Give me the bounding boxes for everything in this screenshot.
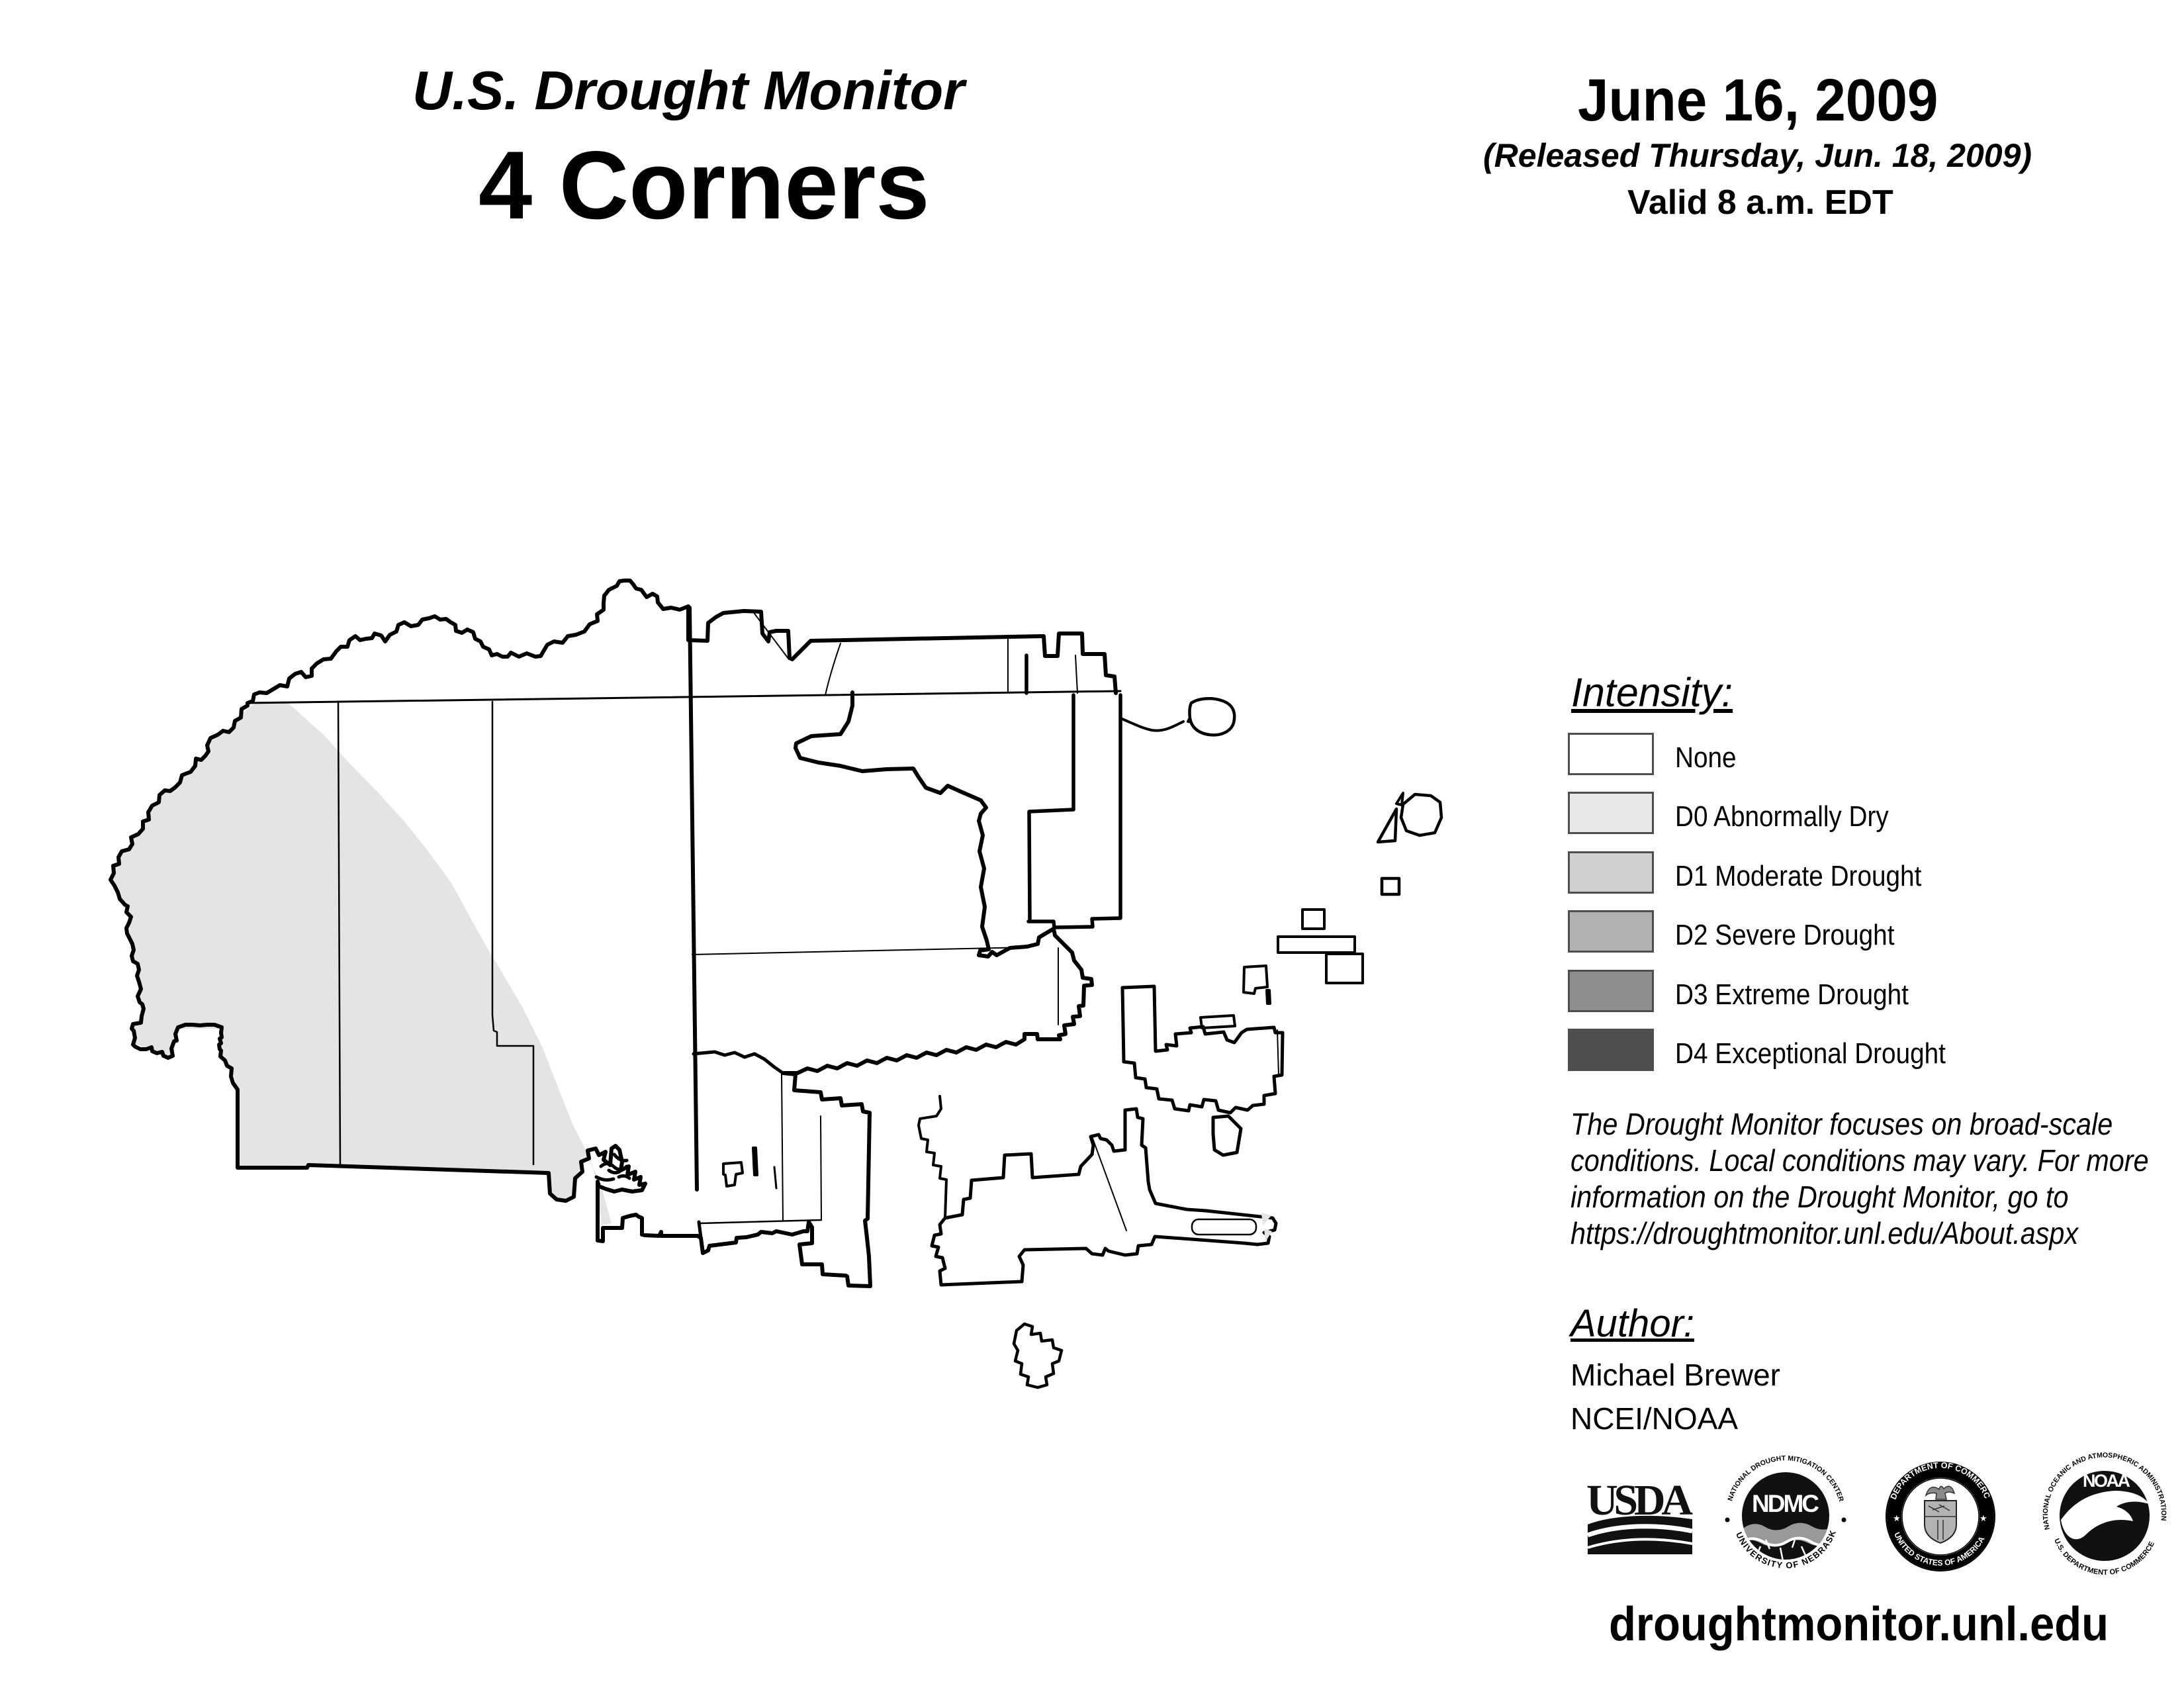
svg-text:NOAA: NOAA	[2083, 1471, 2130, 1491]
svg-text:★: ★	[1893, 1513, 1901, 1523]
svg-text:NDMC: NDMC	[1752, 1490, 1819, 1517]
svg-text:★: ★	[1979, 1513, 1987, 1523]
